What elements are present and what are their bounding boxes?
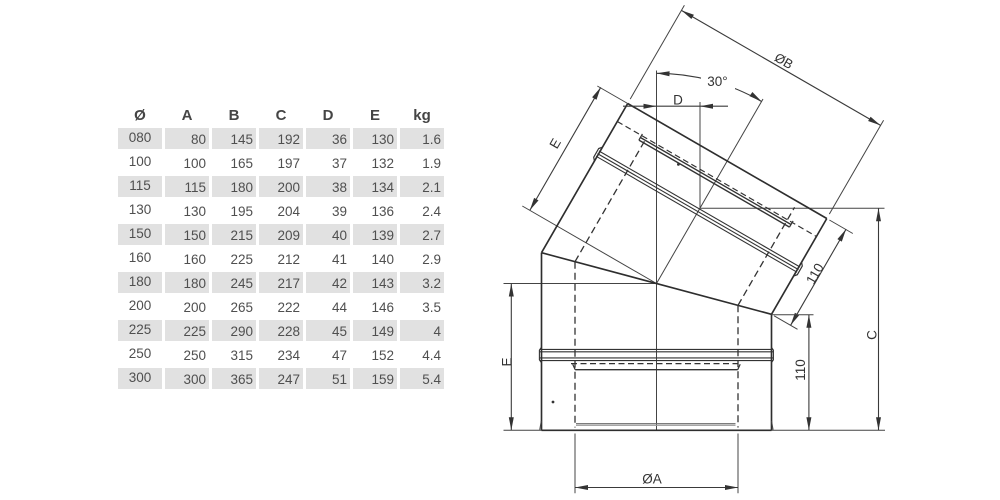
svg-text:D: D [673,93,683,108]
svg-text:ØB: ØB [772,50,796,72]
svg-text:110: 110 [793,359,808,381]
svg-text:ØA: ØA [642,472,662,487]
svg-text:30°: 30° [707,74,727,89]
svg-text:E: E [499,357,514,366]
svg-text:C: C [864,330,879,340]
svg-text:E: E [547,136,564,151]
svg-text:110: 110 [803,261,827,287]
